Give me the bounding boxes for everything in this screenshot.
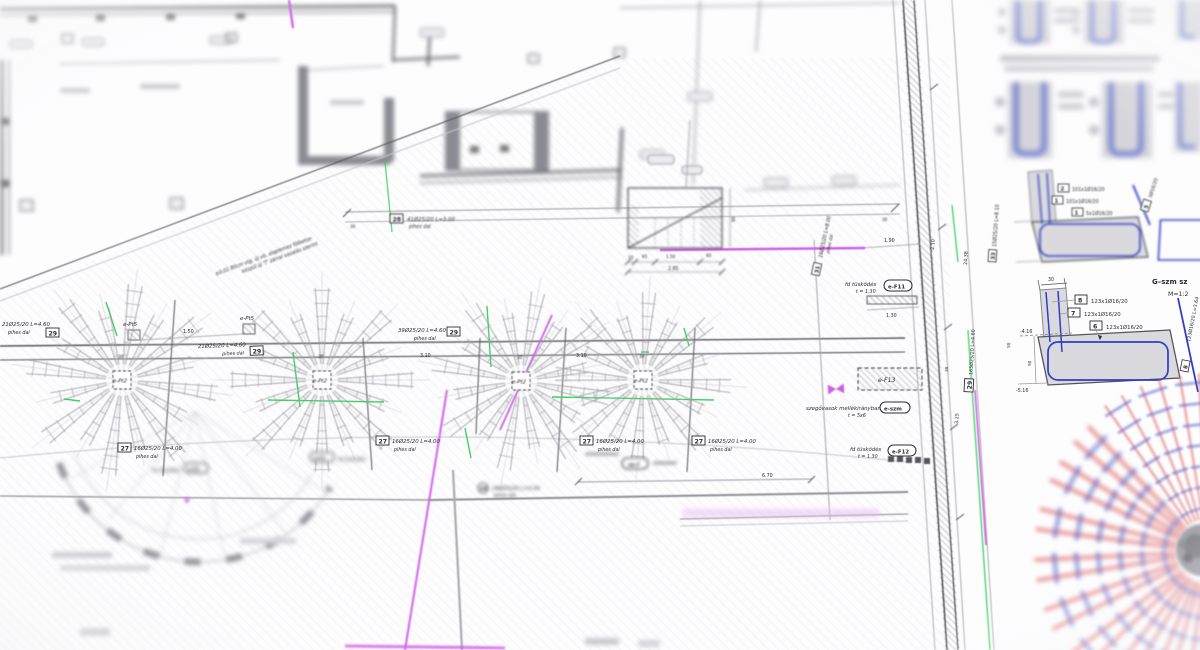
drawing-canvas: e-Pt230 e-Pt230 e-Pt230 e-Pt230 (0, 0, 1200, 650)
photo-vignette (0, 0, 1200, 650)
blueprint-sheet: e-Pt230 e-Pt230 e-Pt230 e-Pt230 (0, 0, 1200, 650)
